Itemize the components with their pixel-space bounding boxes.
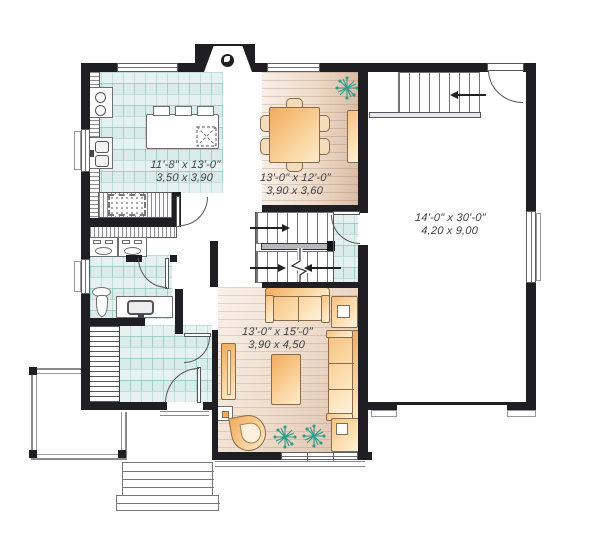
- door-swing-arc: [488, 70, 523, 103]
- door-oval: [95, 247, 112, 255]
- window: [81, 129, 90, 172]
- door-sill: [160, 411, 209, 416]
- step-tread: [123, 471, 214, 472]
- living-dims-metric: 3,90 x 4,50: [219, 339, 334, 352]
- burner: [95, 105, 106, 116]
- stair-handrail: [369, 112, 481, 118]
- door-opening: [167, 402, 203, 410]
- arrow-head-icon: [278, 264, 286, 272]
- window-sill: [74, 261, 81, 292]
- burner: [95, 92, 106, 103]
- window: [117, 63, 178, 72]
- stair-arrow: [250, 267, 279, 269]
- garage-dims-metric: 4,20 x 9,00: [391, 225, 508, 238]
- coffee-table: [271, 354, 301, 405]
- label-garage: 14'-0" x 30'-0" 4,20 x 9,00: [391, 212, 508, 237]
- door-oval: [124, 247, 141, 255]
- dining-chair: [319, 115, 330, 132]
- control-panel: [134, 240, 142, 244]
- bar-stool: [175, 106, 192, 116]
- plant-icon: [302, 424, 326, 448]
- porch-edge: [31, 368, 82, 370]
- flue-icon: [221, 54, 234, 67]
- dishwasher: [196, 126, 217, 147]
- porch-post: [118, 450, 126, 458]
- porch-inner-line: [36, 454, 122, 455]
- cushion-divider: [329, 389, 354, 390]
- bar-stool: [197, 106, 214, 116]
- window-sill: [74, 131, 81, 170]
- step-tread: [123, 487, 214, 488]
- wall: [210, 241, 218, 287]
- corner-table: [331, 296, 358, 328]
- dining-dims-metric: 3,90 x 3,60: [237, 185, 352, 198]
- porch-inner-line: [36, 373, 82, 374]
- floor-plan: 11'-8" x 13'-0" 3,50 x 3,90 13'-0" x 12'…: [0, 0, 600, 551]
- flue-swirl: [224, 56, 230, 62]
- cushion-divider: [329, 363, 354, 364]
- dining-dims-imperial: 13'-0" x 12'-0": [238, 172, 353, 185]
- label-living: 13'-0" x 15'-0" 3,90 x 4,50: [219, 326, 334, 351]
- arrow-head-icon: [304, 264, 312, 272]
- wall: [507, 402, 536, 410]
- wall: [81, 318, 145, 326]
- wall: [358, 63, 368, 460]
- kitchen-dims-metric: 3,50 x 3,90: [127, 172, 242, 185]
- dining-table: [269, 107, 320, 163]
- coat-closet: [90, 326, 120, 402]
- porch-post: [29, 450, 37, 458]
- window: [267, 63, 320, 72]
- stair-arrow: [250, 227, 283, 229]
- wall: [170, 255, 177, 262]
- garage-door-sill: [371, 410, 397, 417]
- table-decor: [222, 411, 229, 418]
- sink-basin: [95, 141, 109, 153]
- window: [526, 211, 536, 283]
- label-kitchen: 11'-8" x 13'-0" 3,50 x 3,90: [127, 159, 242, 184]
- stair-arrow: [311, 267, 341, 269]
- porch-inner-line: [121, 412, 122, 455]
- front-step-bottom: [116, 495, 219, 511]
- control-panel: [122, 240, 130, 244]
- stove: [89, 87, 113, 118]
- console-detail: [227, 350, 231, 395]
- vanity: [116, 296, 173, 318]
- garage-door: [397, 402, 507, 405]
- wall: [262, 282, 368, 288]
- sink-basin: [95, 155, 109, 167]
- window-sill: [536, 213, 541, 281]
- stair-stringer: [255, 212, 256, 283]
- table-decor: [337, 305, 350, 318]
- garage-stairs: [398, 72, 480, 114]
- kitchen-dims-imperial: 11'-8" x 13'-0": [128, 159, 243, 172]
- porch-post: [29, 367, 37, 375]
- plant-icon: [335, 76, 359, 100]
- step-tread: [123, 479, 214, 480]
- dining-chair: [319, 138, 330, 155]
- faucet-icon: [90, 150, 94, 157]
- window: [281, 452, 358, 460]
- plant-icon: [273, 425, 297, 449]
- label-dining: 13'-0" x 12'-0" 3,90 x 3,60: [237, 172, 352, 197]
- bar-stool: [153, 106, 170, 116]
- arrow-head-icon: [450, 91, 458, 99]
- control-panel: [105, 240, 113, 244]
- window: [81, 259, 90, 294]
- garage-dims-imperial: 14'-0" x 30'-0": [392, 212, 509, 225]
- porch-inner-line: [36, 373, 37, 455]
- garage-door-sill: [507, 410, 536, 417]
- pantry: [108, 194, 146, 216]
- arrow-head-icon: [282, 224, 290, 232]
- wall: [368, 402, 397, 410]
- wall: [81, 218, 177, 227]
- porch-edge: [31, 458, 127, 460]
- window-mullion: [333, 453, 334, 461]
- dryer: [118, 237, 147, 257]
- window-mullion: [307, 453, 308, 461]
- control-panel: [93, 240, 101, 244]
- cushion-divider: [298, 297, 299, 322]
- wall: [212, 330, 218, 452]
- armchair-seat: [239, 421, 262, 445]
- porch-edge: [31, 368, 33, 460]
- door-swing-arc: [180, 197, 208, 226]
- wall: [81, 63, 90, 410]
- window-ledge: [215, 461, 365, 467]
- loveseat-arm: [321, 295, 330, 323]
- loveseat-seat: [273, 296, 322, 321]
- table-decor: [336, 423, 348, 435]
- corner-desk: [331, 418, 360, 452]
- stair-arrow: [457, 94, 486, 96]
- vanity-sink: [127, 300, 154, 315]
- wall: [175, 289, 183, 334]
- step-tread: [117, 503, 220, 504]
- front-steps: [122, 462, 213, 496]
- console-table: [221, 343, 236, 400]
- wall: [523, 63, 536, 72]
- washer: [89, 237, 118, 257]
- kitchen-sink: [89, 137, 113, 169]
- living-dims-imperial: 13'-0" x 15'-0": [220, 326, 335, 339]
